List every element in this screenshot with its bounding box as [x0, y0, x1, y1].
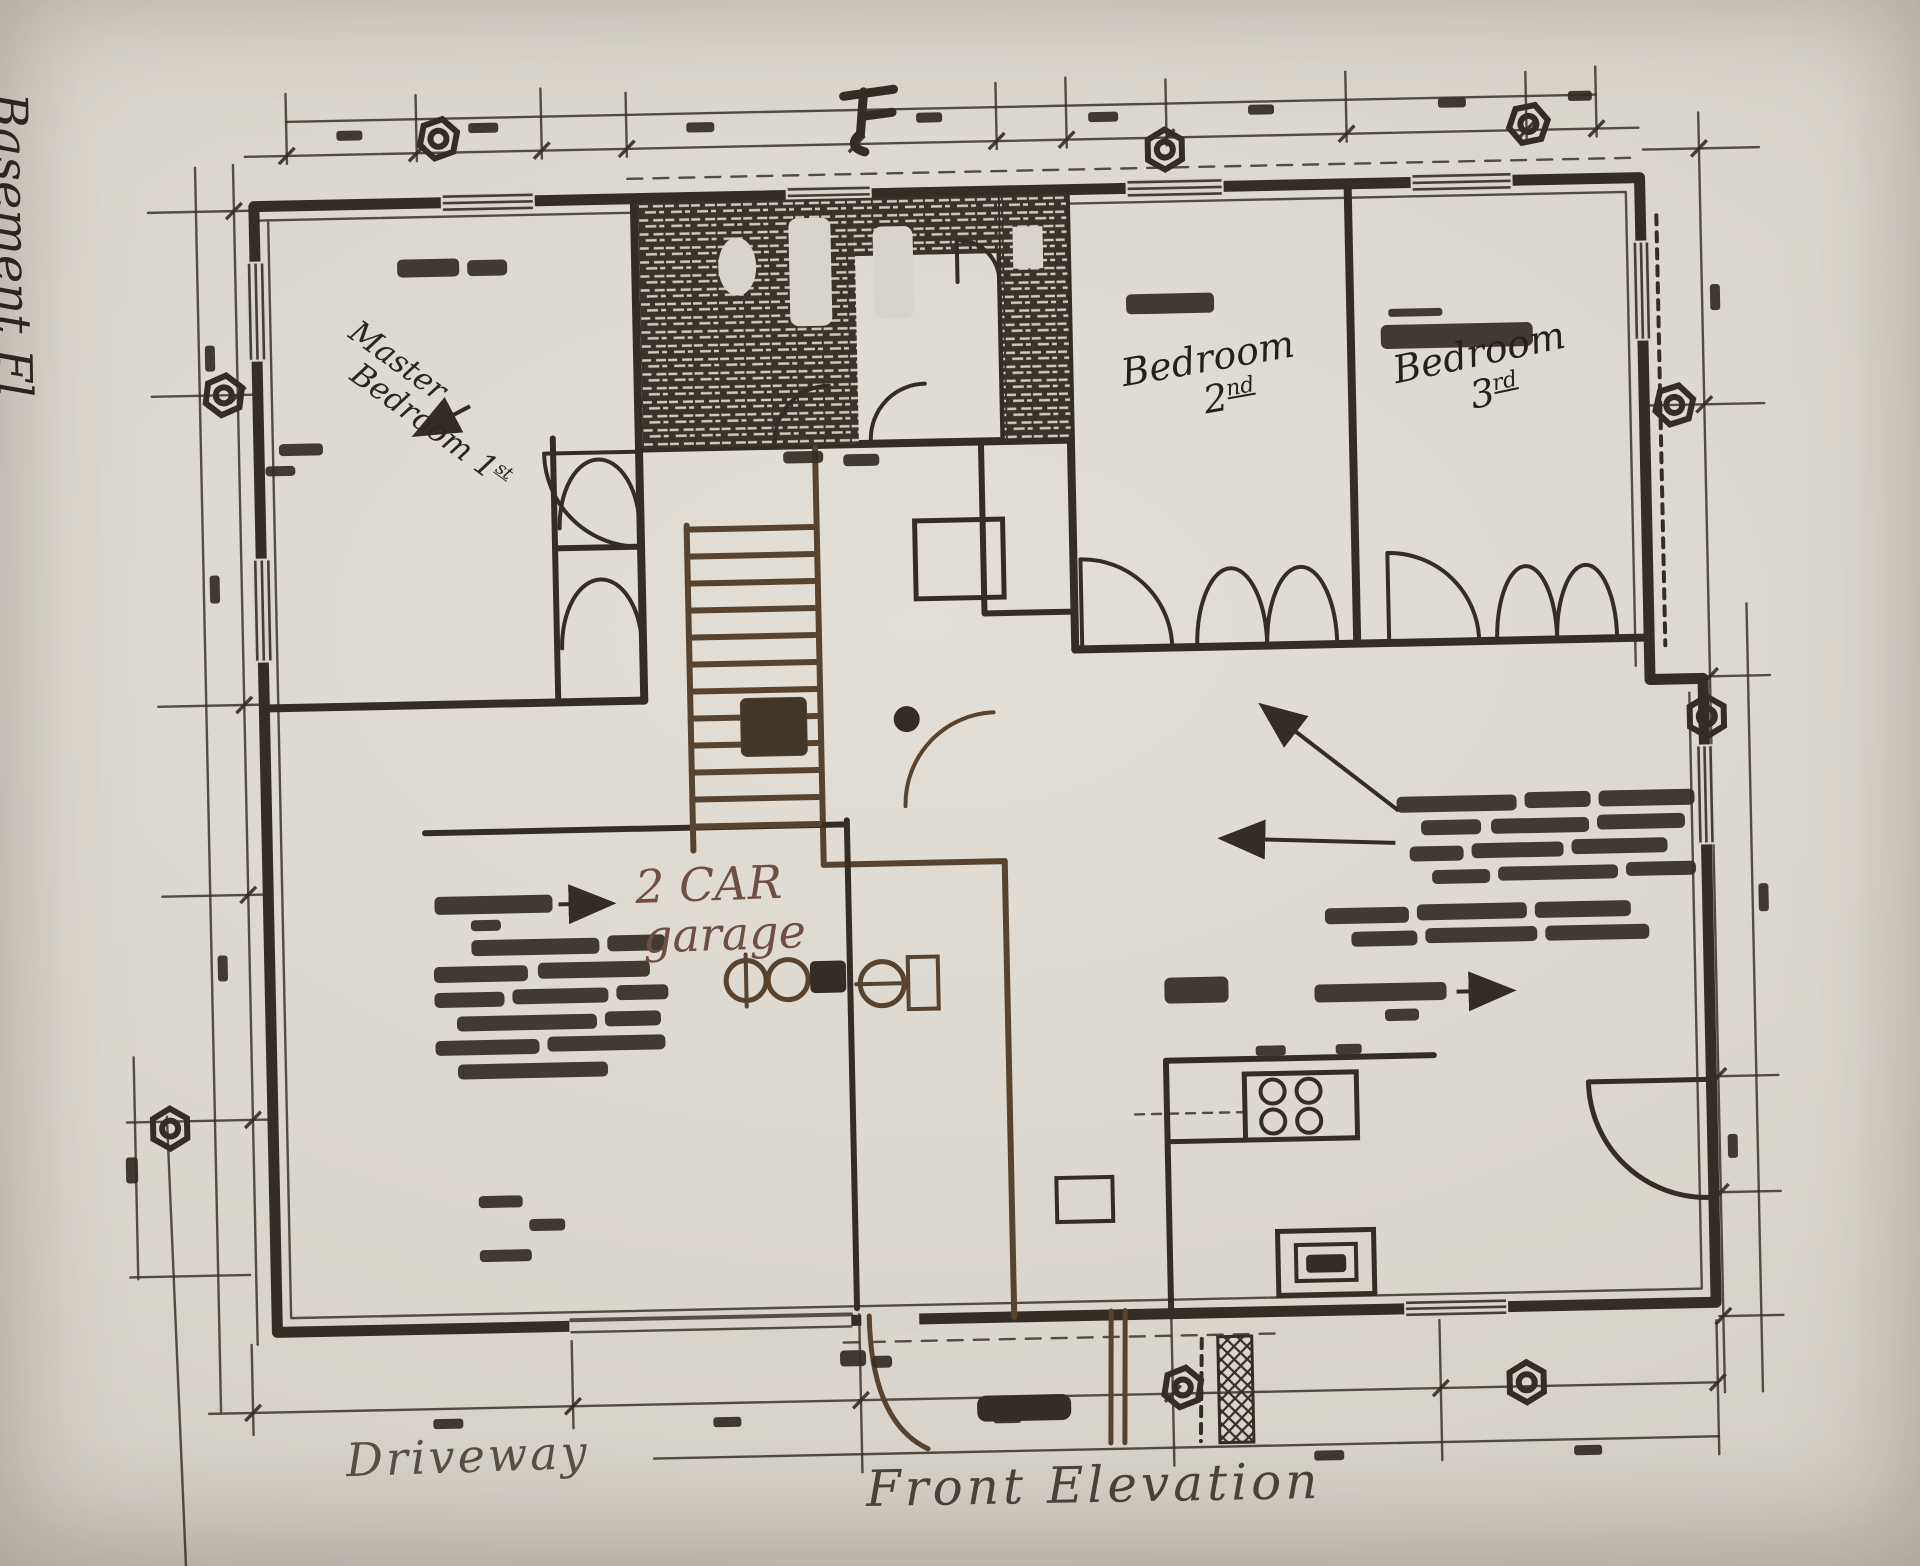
driveway-label: Driveway	[345, 1428, 590, 1486]
printed-label-bedroom2	[1126, 293, 1214, 315]
floor-plan-photo: Basement Fl Master Bedroom 1st Bedroom 2…	[0, 0, 1920, 1566]
dimension-lines	[104, 63, 1789, 1566]
dimension-number-marks	[104, 87, 1780, 1485]
dashed-lines	[1656, 215, 1665, 645]
bathroom-block	[638, 194, 1072, 471]
stairs	[687, 523, 820, 851]
bedroom2-ordinal: nd	[1224, 372, 1256, 402]
basement-side-note: Basement Fl	[0, 92, 39, 398]
utility-symbols	[726, 951, 939, 1013]
bedroom3-ordinal: rd	[1490, 367, 1519, 397]
spec-note-right	[1160, 789, 1699, 1026]
garage-line2: garage	[642, 907, 807, 962]
floor-plan-drawing	[0, 0, 1920, 1566]
garage-label: 2 CAR garage	[634, 857, 806, 962]
front-elevation-title: Front Elevation	[866, 1454, 1322, 1516]
bolt-symbols	[132, 89, 1738, 1432]
